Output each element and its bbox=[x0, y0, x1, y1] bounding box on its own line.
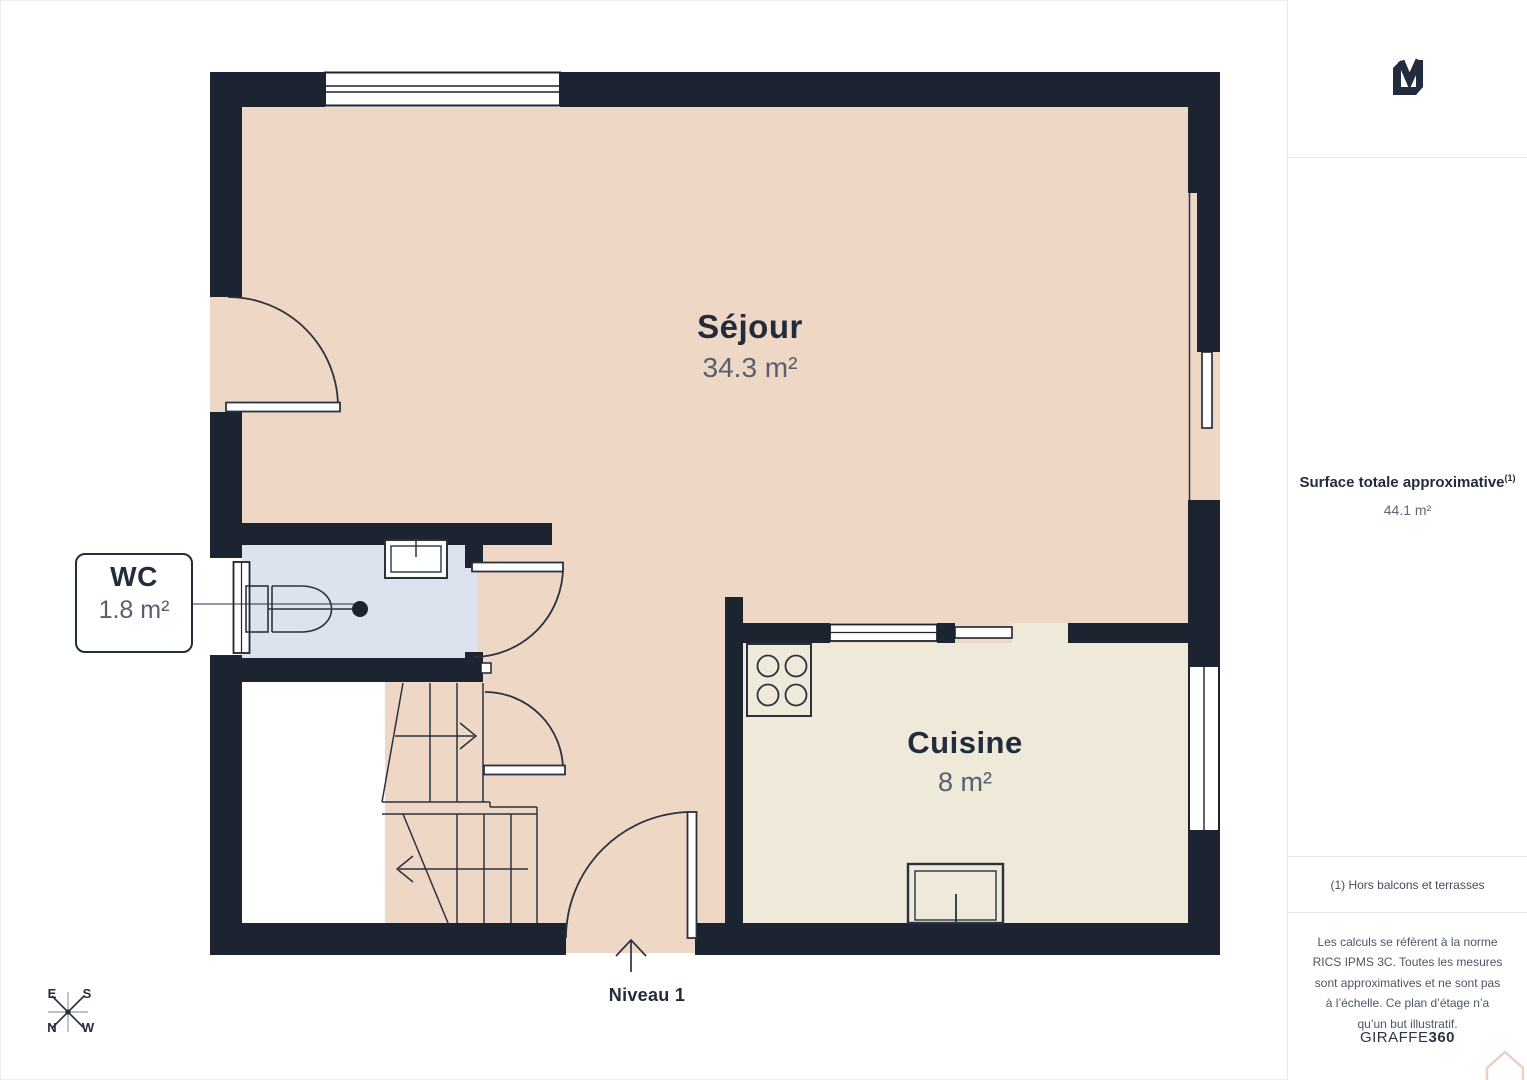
house-watermark-icon bbox=[1481, 1048, 1527, 1080]
window-cuisine bbox=[1189, 666, 1219, 831]
level-label: Niveau 1 bbox=[557, 985, 737, 1006]
window-wc bbox=[234, 562, 250, 653]
sidebar: Surface totale approximative(1) 44.1 m² … bbox=[1287, 0, 1527, 1080]
door-frame-notch bbox=[481, 663, 491, 673]
void-area bbox=[242, 682, 385, 923]
room-label-cuisine: Cuisine 8 m² bbox=[845, 725, 1085, 798]
room-label-wc: WC 1.8 m² bbox=[75, 553, 193, 653]
footnote: (1) Hors balcons et terrasses bbox=[1288, 856, 1527, 913]
compass-letter-w: W bbox=[80, 1020, 96, 1035]
room-area: 1.8 m² bbox=[77, 596, 191, 625]
washbasin-icon bbox=[385, 540, 447, 578]
surface-block: Surface totale approximative(1) 44.1 m² bbox=[1288, 473, 1527, 518]
surface-value: 44.1 m² bbox=[1288, 502, 1527, 518]
room-name: Séjour bbox=[630, 308, 870, 346]
surface-title: Surface totale approximative(1) bbox=[1288, 473, 1527, 491]
disclaimer-text: Les calculs se réfèrent à la norme RICS … bbox=[1288, 932, 1527, 1034]
surface-footnote-marker: (1) bbox=[1505, 473, 1516, 483]
lm-logo-icon bbox=[1386, 57, 1430, 101]
brand-suffix: 360 bbox=[1428, 1029, 1455, 1046]
compass-letter-e: E bbox=[44, 986, 60, 1001]
floorplan-drawing bbox=[0, 0, 1287, 1080]
room-label-sejour: Séjour 34.3 m² bbox=[630, 308, 870, 384]
floorplan-page: Séjour 34.3 m² Cuisine 8 m² WC 1.8 m² Ni… bbox=[0, 0, 1527, 1080]
compass-letter-n: N bbox=[44, 1020, 60, 1035]
room-area: 8 m² bbox=[845, 767, 1085, 798]
window-top bbox=[325, 73, 560, 106]
floorplan-area: Séjour 34.3 m² Cuisine 8 m² WC 1.8 m² Ni… bbox=[0, 0, 1287, 1080]
window-divider bbox=[830, 625, 1012, 642]
compass-letter-s: S bbox=[79, 986, 95, 1001]
room-name: Cuisine bbox=[845, 725, 1085, 761]
brand-logo: GIRAFFE360 bbox=[1288, 1029, 1527, 1046]
brand-name: GIRAFFE bbox=[1360, 1029, 1429, 1046]
room-name: WC bbox=[77, 561, 191, 593]
room-area: 34.3 m² bbox=[630, 352, 870, 384]
surface-title-text: Surface totale approximative bbox=[1299, 474, 1504, 491]
logo-section bbox=[1288, 0, 1527, 158]
